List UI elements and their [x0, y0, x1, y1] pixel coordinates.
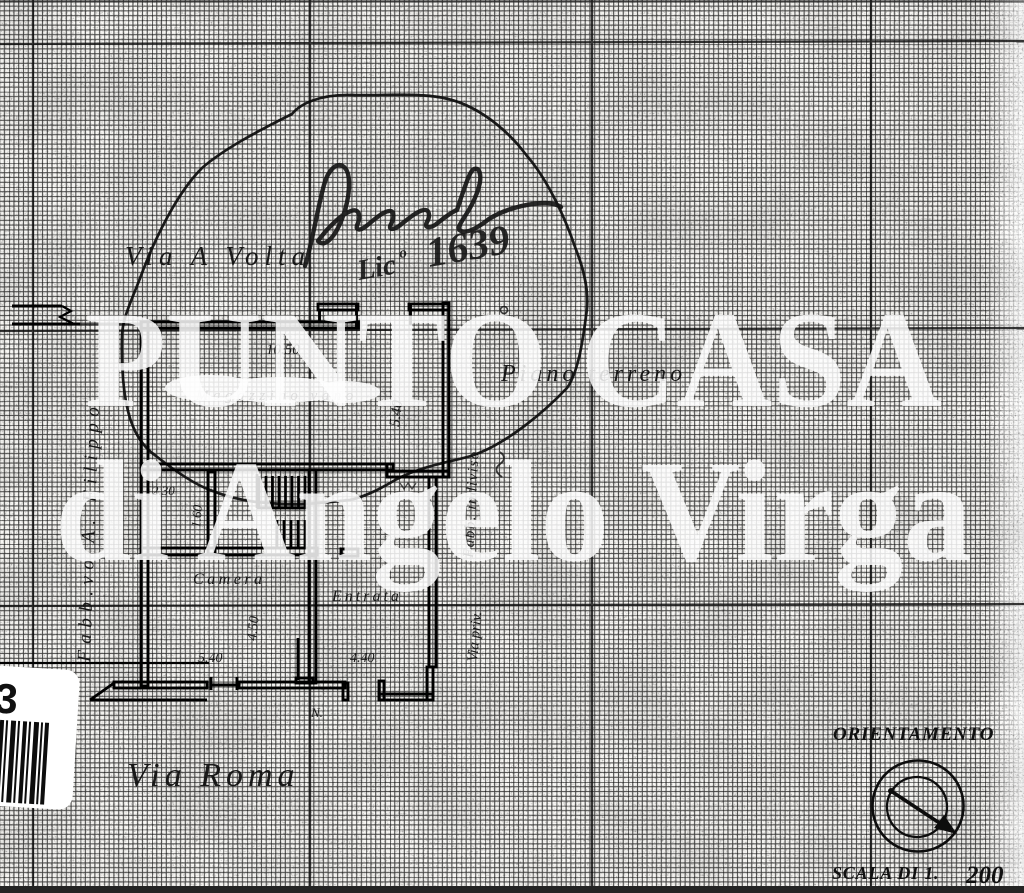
svg-text:4.40: 4.40 — [350, 651, 375, 666]
svg-text:PUNTO CASA: PUNTO CASA — [85, 283, 942, 436]
svg-text:5.40: 5.40 — [198, 651, 223, 666]
svg-text:Via A Volta: Via A Volta — [125, 241, 311, 271]
svg-text:di Angelo Virga: di Angelo Virga — [55, 432, 972, 592]
svg-text:SCALA DI 1.: SCALA DI 1. — [832, 863, 939, 883]
svg-text:ORIENTAMENTO: ORIENTAMENTO — [833, 724, 994, 745]
svg-text:3: 3 — [0, 674, 19, 722]
svg-text:Lic: Lic — [354, 249, 399, 287]
svg-text:N.: N. — [310, 705, 323, 720]
svg-text:4.50: 4.50 — [245, 615, 262, 641]
svg-text:Via Roma: Via Roma — [127, 757, 300, 794]
svg-text:200: 200 — [965, 862, 1004, 889]
